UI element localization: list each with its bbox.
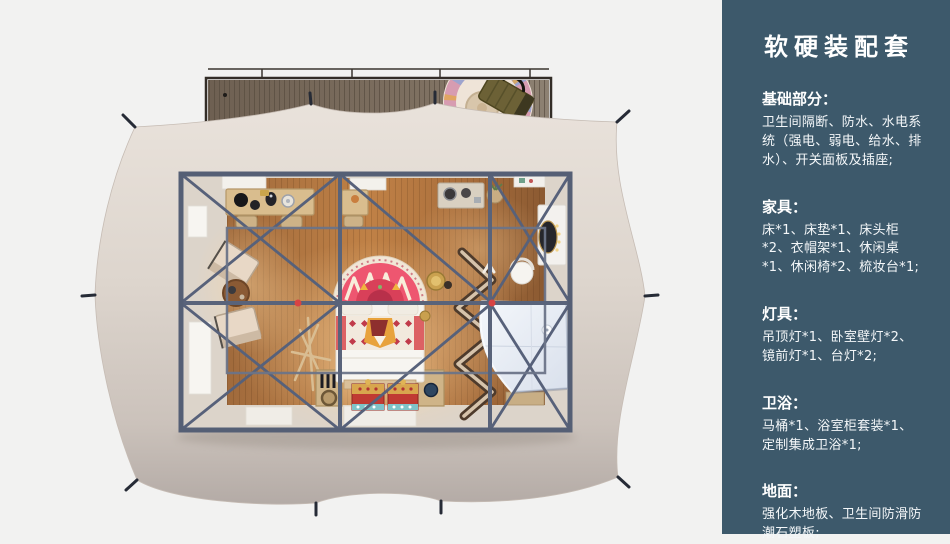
- floorplan-render: [0, 0, 722, 534]
- section-body: 吊顶灯*1、卧室壁灯*2、镜前灯*1、台灯*2;: [762, 329, 922, 367]
- section-body: 强化木地板、卫生间防滑防潮石塑板;: [762, 506, 922, 544]
- section-heading: 地面：: [762, 480, 922, 501]
- section-body: 马桶*1、浴室柜套装*1、定制集成卫浴*1;: [762, 418, 922, 456]
- spec-sidebar: 软硬装配套 基础部分： 卫生间隔断、防水、水电系统（强电、弱电、给水、排水）、开…: [722, 0, 950, 534]
- sidebar-title: 软硬装配套: [722, 27, 950, 62]
- bed: [336, 300, 424, 389]
- spec-section-flooring: 地面： 强化木地板、卫生间防滑防潮石塑板;: [762, 480, 922, 544]
- section-heading: 基础部分：: [762, 88, 922, 109]
- kitchen-shelf: [514, 175, 545, 187]
- section-heading: 卫浴：: [762, 392, 922, 413]
- spec-section-lighting: 灯具： 吊顶灯*1、卧室壁灯*2、镜前灯*1、台灯*2;: [762, 303, 922, 367]
- section-body: 床*1、床垫*1、床头柜*2、衣帽架*1、休闲桌*1、休闲椅*2、梳妆台*1;: [762, 222, 922, 279]
- floorplan-panel: [0, 0, 722, 534]
- section-body: 卫生间隔断、防水、水电系统（强电、弱电、给水、排水）、开关面板及插座;: [762, 114, 922, 171]
- kitchen-counter: [438, 183, 484, 208]
- page: 软硬装配套 基础部分： 卫生间隔断、防水、水电系统（强电、弱电、给水、排水）、开…: [0, 0, 950, 534]
- spec-section-bathroom: 卫浴： 马桶*1、浴室柜套装*1、定制集成卫浴*1;: [762, 392, 922, 456]
- pattern-blanket: [336, 316, 424, 350]
- spec-section-basics: 基础部分： 卫生间隔断、防水、水电系统（强电、弱电、给水、排水）、开关面板及插座…: [762, 88, 922, 171]
- section-heading: 家具：: [762, 196, 922, 217]
- vanity-mirror: [539, 221, 557, 253]
- spec-list: 基础部分： 卫生间隔断、防水、水电系统（强电、弱电、给水、排水）、开关面板及插座…: [722, 88, 950, 544]
- writing-desk: [226, 189, 368, 215]
- spec-section-furniture: 家具： 床*1、床垫*1、床头柜*2、衣帽架*1、休闲桌*1、休闲椅*2、梳妆台…: [762, 196, 922, 279]
- section-heading: 灯具：: [762, 303, 922, 324]
